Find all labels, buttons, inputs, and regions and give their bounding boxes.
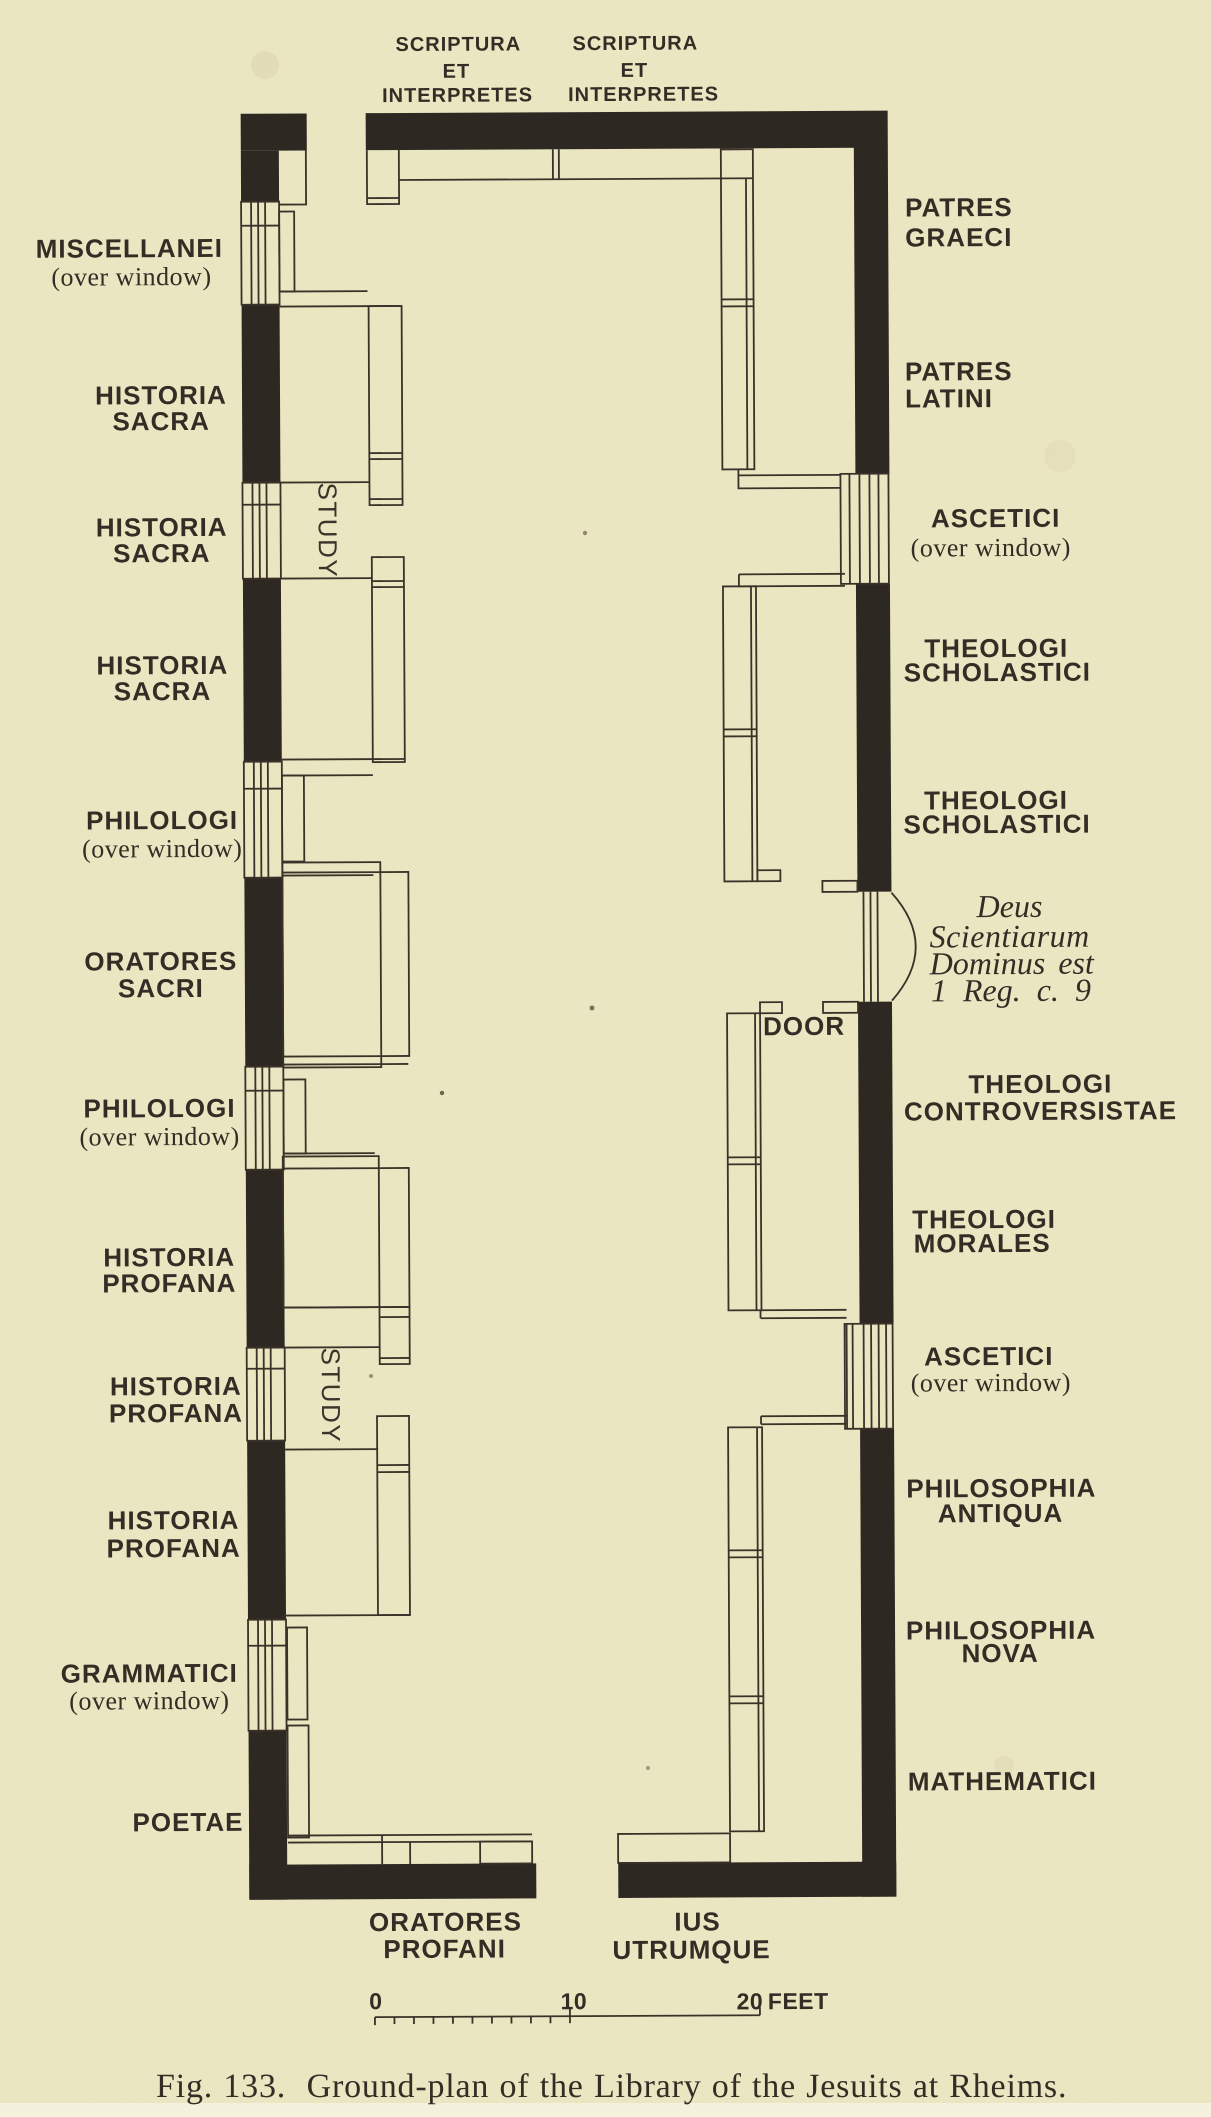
svg-text:SACRI: SACRI xyxy=(118,973,204,1003)
svg-text:SCRIPTURA: SCRIPTURA xyxy=(395,33,521,56)
svg-text:MATHEMATICI: MATHEMATICI xyxy=(908,1766,1097,1797)
svg-text:SACRA: SACRA xyxy=(114,676,212,706)
svg-text:STUDY: STUDY xyxy=(312,482,342,578)
svg-text:FEET: FEET xyxy=(768,1988,829,2014)
svg-text:(over window): (over window) xyxy=(82,834,242,864)
svg-text:(over window): (over window) xyxy=(79,1122,239,1152)
svg-text:HISTORIA: HISTORIA xyxy=(108,1505,240,1536)
svg-text:ET: ET xyxy=(443,61,471,83)
svg-text:PATRES: PATRES xyxy=(905,192,1013,223)
svg-text:SACRA: SACRA xyxy=(112,406,210,436)
svg-text:STUDY: STUDY xyxy=(316,1347,346,1443)
svg-text:ASCETICI: ASCETICI xyxy=(924,1341,1053,1372)
svg-text:Fig. 133. Ground-plan of the: Fig. 133. Ground-plan of the Library of … xyxy=(156,2068,1067,2105)
svg-text:PATRES: PATRES xyxy=(905,356,1013,387)
svg-text:PHILOLOGI: PHILOLOGI xyxy=(86,805,238,836)
svg-text:MISCELLANEI: MISCELLANEI xyxy=(36,233,223,264)
svg-text:POETAE: POETAE xyxy=(132,1807,243,1838)
svg-text:PROFANA: PROFANA xyxy=(102,1268,236,1299)
svg-text:SCHOLASTICI: SCHOLASTICI xyxy=(904,657,1091,688)
svg-text:LATINI: LATINI xyxy=(905,383,993,413)
svg-text:INTERPRETES: INTERPRETES xyxy=(568,83,719,106)
svg-text:DOOR: DOOR xyxy=(763,1011,845,1041)
svg-text:CONTROVERSISTAE: CONTROVERSISTAE xyxy=(904,1095,1177,1126)
svg-text:THEOLOGI: THEOLOGI xyxy=(968,1069,1112,1100)
svg-text:INTERPRETES: INTERPRETES xyxy=(382,84,533,107)
svg-text:PHILOLOGI: PHILOLOGI xyxy=(83,1093,235,1124)
svg-text:ASCETICI: ASCETICI xyxy=(931,503,1060,534)
svg-text:NOVA: NOVA xyxy=(961,1638,1038,1668)
svg-text:SCHOLASTICI: SCHOLASTICI xyxy=(903,809,1090,840)
svg-text:(over window): (over window) xyxy=(911,1368,1071,1398)
svg-text:ET: ET xyxy=(621,60,649,82)
svg-text:SCRIPTURA: SCRIPTURA xyxy=(572,33,698,56)
svg-text:IUS: IUS xyxy=(674,1906,720,1936)
svg-text:ANTIQUA: ANTIQUA xyxy=(938,1498,1064,1529)
svg-text:GRAECI: GRAECI xyxy=(905,222,1012,253)
svg-text:MORALES: MORALES xyxy=(914,1228,1051,1259)
svg-text:PROFANA: PROFANA xyxy=(109,1398,243,1429)
svg-text:1 Reg. c. 9: 1 Reg. c. 9 xyxy=(931,972,1091,1009)
svg-text:HISTORIA: HISTORIA xyxy=(110,1371,242,1402)
svg-text:ORATORES: ORATORES xyxy=(84,946,237,977)
svg-text:(over window): (over window) xyxy=(69,1686,229,1716)
svg-text:SACRA: SACRA xyxy=(113,538,211,568)
svg-text:(over window): (over window) xyxy=(51,262,211,292)
svg-text:10: 10 xyxy=(561,1988,588,2014)
svg-text:(over window): (over window) xyxy=(911,533,1071,563)
svg-text:UTRUMQUE: UTRUMQUE xyxy=(612,1934,770,1965)
svg-text:PROFANA: PROFANA xyxy=(107,1533,241,1564)
svg-text:0: 0 xyxy=(369,1988,382,2014)
svg-text:GRAMMATICI: GRAMMATICI xyxy=(61,1658,238,1689)
svg-text:PROFANI: PROFANI xyxy=(383,1933,506,1964)
